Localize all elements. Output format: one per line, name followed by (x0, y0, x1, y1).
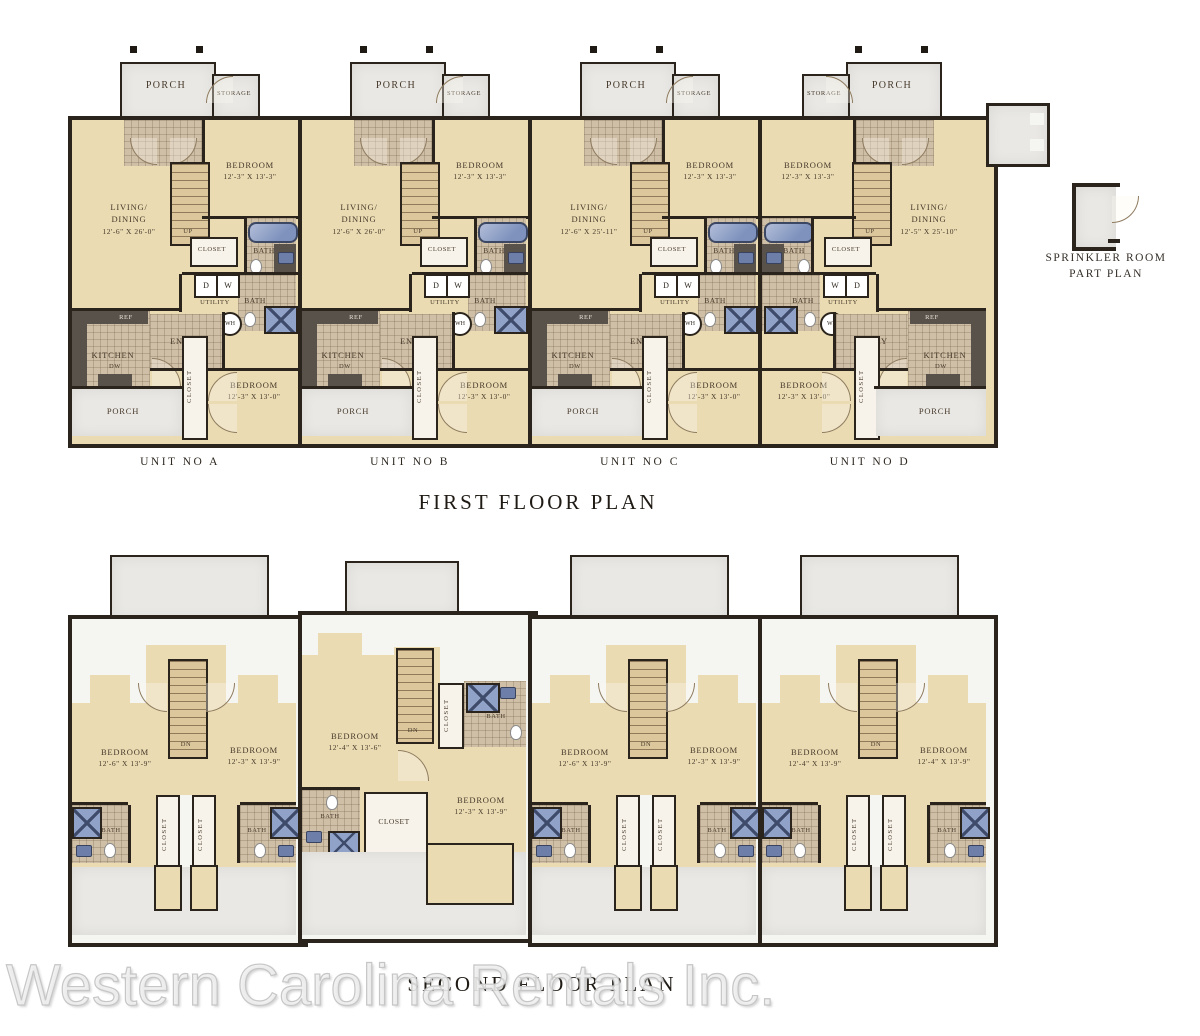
roof-area (110, 555, 269, 621)
shower-icon (494, 306, 528, 334)
wall (758, 368, 908, 371)
living-label-2: DINING (874, 214, 984, 224)
utility-label: UTILITY (414, 299, 476, 307)
toilet-icon (244, 312, 256, 327)
bedroom-left-dim: 12'-4" X 13'-6" (306, 743, 404, 752)
second-floor-title: SECOND FLOOR PLAN (377, 972, 707, 997)
toilet-icon (474, 312, 486, 327)
closet-right-label: CLOSET (887, 805, 894, 863)
bedroom1-dim: 12'-3" X 13'-3" (662, 172, 758, 181)
dormer-floor (318, 633, 362, 657)
kitchen-label: KITCHEN (912, 350, 978, 360)
closet-left-label: CLOSET (161, 805, 168, 863)
first-floor-unit-b: PORCH STORAGE UP LIVING/ DINING 12'-6" X… (298, 60, 530, 480)
bedroom1-label: BEDROOM (760, 160, 856, 170)
bedroom1-label: BEDROOM (662, 160, 758, 170)
dormer-floor (928, 675, 968, 705)
door-arc (1112, 196, 1139, 223)
dormer-floor (238, 675, 278, 705)
living-dim: 12'-5" X 25'-10" (874, 227, 984, 236)
wall (452, 312, 455, 368)
washer-box: W (216, 274, 240, 298)
bedroom-right-dim: 12'-3" X 13'-9" (662, 757, 766, 766)
toilet-icon (944, 843, 956, 858)
wall (833, 312, 836, 368)
living-label-2: DINING (304, 214, 414, 224)
sprinkler-label-2: PART PLAN (1040, 268, 1172, 282)
bathtub-icon (478, 222, 528, 243)
bedroom-right-dim: 12'-3" X 13'-9" (432, 807, 530, 816)
sink-icon (76, 845, 92, 857)
wall (588, 805, 591, 863)
porch-post (130, 46, 137, 53)
unit-caption: UNIT NO D (758, 456, 982, 468)
wall (639, 274, 642, 312)
closet-extension (154, 865, 182, 911)
living-dim: 12'-6" X 26'-0" (304, 227, 414, 236)
bedroom1-dim: 12'-3" X 13'-3" (202, 172, 298, 181)
porch-bottom-label: PORCH (548, 406, 618, 416)
closet-extension (844, 865, 872, 911)
wall (700, 802, 756, 805)
wall (1108, 183, 1120, 187)
roof-area (570, 555, 729, 621)
bedroom-left-label: BEDROOM (534, 747, 636, 757)
bedroom-left-dim: 12'-6" X 13'-9" (74, 759, 176, 768)
toilet-icon (254, 843, 266, 858)
bedroom-extension (426, 843, 514, 905)
closet-right-label: CLOSET (197, 805, 204, 863)
bath-left-label: BATH (94, 827, 128, 835)
closet2-label: CLOSET (186, 350, 193, 422)
wall (202, 116, 205, 164)
closet-vertical (438, 683, 464, 749)
wall (237, 805, 240, 863)
sink-icon (738, 252, 754, 264)
bedroom1-dim: 12'-3" X 13'-3" (432, 172, 528, 181)
shower-icon (264, 306, 298, 334)
bedroom-left-dim: 12'-4" X 13'-9" (764, 759, 866, 768)
wall (244, 218, 247, 274)
porch-area (120, 62, 216, 122)
wall (150, 368, 300, 371)
bath-right-label: BATH (700, 827, 734, 835)
dormer-floor (550, 675, 590, 705)
first-floor-unit-d: PORCH STORAGE UP LIVING/ DINING 12'-5" X… (758, 60, 990, 480)
wall (927, 805, 930, 863)
wall (930, 802, 986, 805)
closet-right (192, 795, 216, 875)
bath-right-label: BATH (240, 827, 274, 835)
wall (302, 787, 360, 790)
closet-left-label: CLOSET (621, 805, 628, 863)
closet2-label: CLOSET (858, 350, 865, 422)
porch-post (360, 46, 367, 53)
wall (811, 218, 814, 274)
porch-bottom-label: PORCH (900, 406, 970, 416)
sink-icon (500, 687, 516, 699)
dryer-box: D (654, 274, 678, 298)
closet2-label: CLOSET (416, 350, 423, 422)
dormer-floor (780, 675, 820, 705)
lower-roof-area (532, 867, 756, 935)
room-label-porch: PORCH (120, 80, 212, 92)
toilet-icon (714, 843, 726, 858)
bedroom-right-dim: 12'-4" X 13'-9" (892, 757, 996, 766)
closet-right (882, 795, 906, 875)
closet-left (616, 795, 640, 875)
living-label-2: DINING (534, 214, 644, 224)
closet-extension (190, 865, 218, 911)
wall (853, 116, 856, 164)
ref-label: REF (108, 314, 144, 322)
sink-icon (766, 845, 782, 857)
bathtub-icon (248, 222, 298, 243)
utility-label: UTILITY (812, 299, 874, 307)
living-dim: 12'-6" X 26'-0" (74, 227, 184, 236)
porch-post (855, 46, 862, 53)
roof-area (345, 561, 459, 617)
sink-icon (278, 252, 294, 264)
closet1-label: CLOSET (650, 246, 694, 254)
wall (380, 368, 530, 371)
wall (179, 274, 182, 312)
porch-bottom-label: PORCH (318, 406, 388, 416)
closet-left (156, 795, 180, 875)
sink-icon (306, 831, 322, 843)
toilet-icon (704, 312, 716, 327)
unit-caption: UNIT NO A (68, 456, 292, 468)
toilet-icon (794, 843, 806, 858)
bedroom1-dim: 12'-3" X 13'-3" (760, 172, 856, 181)
second-floor-unit-c: DN BEDROOM 12'-6" X 13'-9" BEDROOM 12'-3… (528, 555, 760, 975)
second-floor-unit-b: DN CLOSET BATH BEDROOM 12'-4" X 13'-6" B… (298, 555, 530, 975)
bath-right-label: BATH (930, 827, 964, 835)
porch-post (590, 46, 597, 53)
lower-roof-area (762, 867, 986, 935)
sink-icon (738, 845, 754, 857)
dw-label: DW (102, 363, 128, 371)
toilet-icon (804, 312, 816, 327)
closet-right (652, 795, 676, 875)
wall (662, 116, 665, 164)
sink-icon (766, 252, 782, 264)
shower-icon (960, 807, 990, 839)
bathtub-icon (764, 222, 814, 243)
closet1-label: CLOSET (824, 246, 868, 254)
closet-left (846, 795, 870, 875)
bedroom-left-label: BEDROOM (306, 731, 404, 741)
wall (704, 218, 707, 274)
ref-label: REF (338, 314, 374, 322)
living-label-1: LIVING/ (304, 202, 414, 212)
lower-roof-area (72, 867, 296, 935)
closet2-label: CLOSET (646, 350, 653, 422)
wall (876, 274, 879, 312)
dw-label: DW (332, 363, 358, 371)
room-label-porch: PORCH (846, 80, 938, 92)
porch-post (196, 46, 203, 53)
closet-room-label: CLOSET (364, 817, 424, 826)
porch-area (350, 62, 446, 122)
bath-top-label: BATH (476, 713, 516, 721)
sprinkler-room-notch (1030, 113, 1044, 125)
bedroom-right-label: BEDROOM (892, 745, 996, 755)
ref-label: REF (914, 314, 950, 322)
porch-post (921, 46, 928, 53)
room-label-porch: PORCH (580, 80, 672, 92)
unit-caption: UNIT NO B (298, 456, 522, 468)
dryer-box: D (424, 274, 448, 298)
wall (128, 805, 131, 863)
unit-caption: UNIT NO C (528, 456, 752, 468)
toilet-icon (326, 795, 338, 810)
shower-icon (724, 306, 758, 334)
shower-icon (764, 306, 798, 334)
closet-left-label: CLOSET (851, 805, 858, 863)
kitchen-label: KITCHEN (80, 350, 146, 360)
washer-box: W (823, 274, 847, 298)
toilet-icon (564, 843, 576, 858)
dw-label: DW (562, 363, 588, 371)
bedroom-left-dim: 12'-6" X 13'-9" (534, 759, 636, 768)
bath-left-label: BATH (784, 827, 818, 835)
second-floor-unit-d: DN BEDROOM 12'-4" X 13'-9" BEDROOM 12'-4… (758, 555, 990, 975)
sink-icon (508, 252, 524, 264)
living-label-1: LIVING/ (74, 202, 184, 212)
bath-bottom-label: BATH (310, 813, 350, 821)
closet1-label: CLOSET (420, 246, 464, 254)
first-floor-unit-c: PORCH STORAGE UP LIVING/ DINING 12'-6" X… (528, 60, 760, 480)
bedroom1-label: BEDROOM (202, 160, 298, 170)
wall (432, 116, 435, 164)
shower-icon (270, 807, 300, 839)
ref-label: REF (568, 314, 604, 322)
floor-plan-canvas: PORCH STORAGE UP LIVING/ DINING 12'-6" X… (0, 0, 1200, 1036)
bedroom-right-label: BEDROOM (432, 795, 530, 805)
first-floor-unit-a: PORCH STORAGE UP LIVING/ DINING 12'-6" X… (68, 60, 300, 480)
room-label-porch: PORCH (350, 80, 442, 92)
wall (1108, 239, 1120, 243)
bedroom-right-label: BEDROOM (202, 745, 306, 755)
porch-post (426, 46, 433, 53)
sink-icon (536, 845, 552, 857)
roof-area (800, 555, 959, 621)
dryer-box: D (845, 274, 869, 298)
closet1-label: CLOSET (190, 246, 234, 254)
porch-area (580, 62, 676, 122)
wall (240, 802, 296, 805)
sprinkler-label-1: SPRINKLER ROOM (1040, 252, 1172, 266)
wall (762, 802, 818, 805)
kitchen-label: KITCHEN (540, 350, 606, 360)
wall (682, 312, 685, 368)
toilet-icon (510, 725, 522, 740)
porch-post (656, 46, 663, 53)
living-label-1: LIVING/ (874, 202, 984, 212)
bedroom-left-label: BEDROOM (764, 747, 866, 757)
second-floor-unit-a: DN BEDROOM 12'-6" X 13'-9" BEDROOM 12'-3… (68, 555, 300, 975)
bedroom-right-label: BEDROOM (662, 745, 766, 755)
sink-icon (968, 845, 984, 857)
bedroom-left-label: BEDROOM (74, 747, 176, 757)
dormer-floor (90, 675, 130, 705)
kitchen-label: KITCHEN (310, 350, 376, 360)
washer-box: W (676, 274, 700, 298)
closet-extension (880, 865, 908, 911)
bedroom-right-dim: 12'-3" X 13'-9" (202, 757, 306, 766)
shower-icon (466, 683, 500, 713)
wall (72, 802, 128, 805)
bedroom1-label: BEDROOM (432, 160, 528, 170)
wall (697, 805, 700, 863)
dw-label: DW (928, 363, 954, 371)
closet-extension (650, 865, 678, 911)
bathtub-icon (708, 222, 758, 243)
closet-extension (614, 865, 642, 911)
utility-label: UTILITY (644, 299, 706, 307)
sprinkler-room-notch (1030, 139, 1044, 151)
living-label-2: DINING (74, 214, 184, 224)
wall (474, 218, 477, 274)
sink-icon (278, 845, 294, 857)
dormer-floor (698, 675, 738, 705)
wall (532, 802, 588, 805)
bath-left-label: BATH (554, 827, 588, 835)
washer-box: W (446, 274, 470, 298)
first-floor-title: FIRST FLOOR PLAN (373, 490, 703, 515)
closet-right-label: CLOSET (657, 805, 664, 863)
shower-icon (730, 807, 760, 839)
wall (409, 274, 412, 312)
porch-bottom-label: PORCH (88, 406, 158, 416)
wall (222, 312, 225, 368)
wall (818, 805, 821, 863)
toilet-icon (104, 843, 116, 858)
porch-area (846, 62, 942, 122)
utility-label: UTILITY (184, 299, 246, 307)
wall (610, 368, 760, 371)
living-label-1: LIVING/ (534, 202, 644, 212)
living-dim: 12'-6" X 25'-11" (534, 227, 644, 236)
dryer-box: D (194, 274, 218, 298)
closet-vertical-label: CLOSET (443, 691, 450, 739)
